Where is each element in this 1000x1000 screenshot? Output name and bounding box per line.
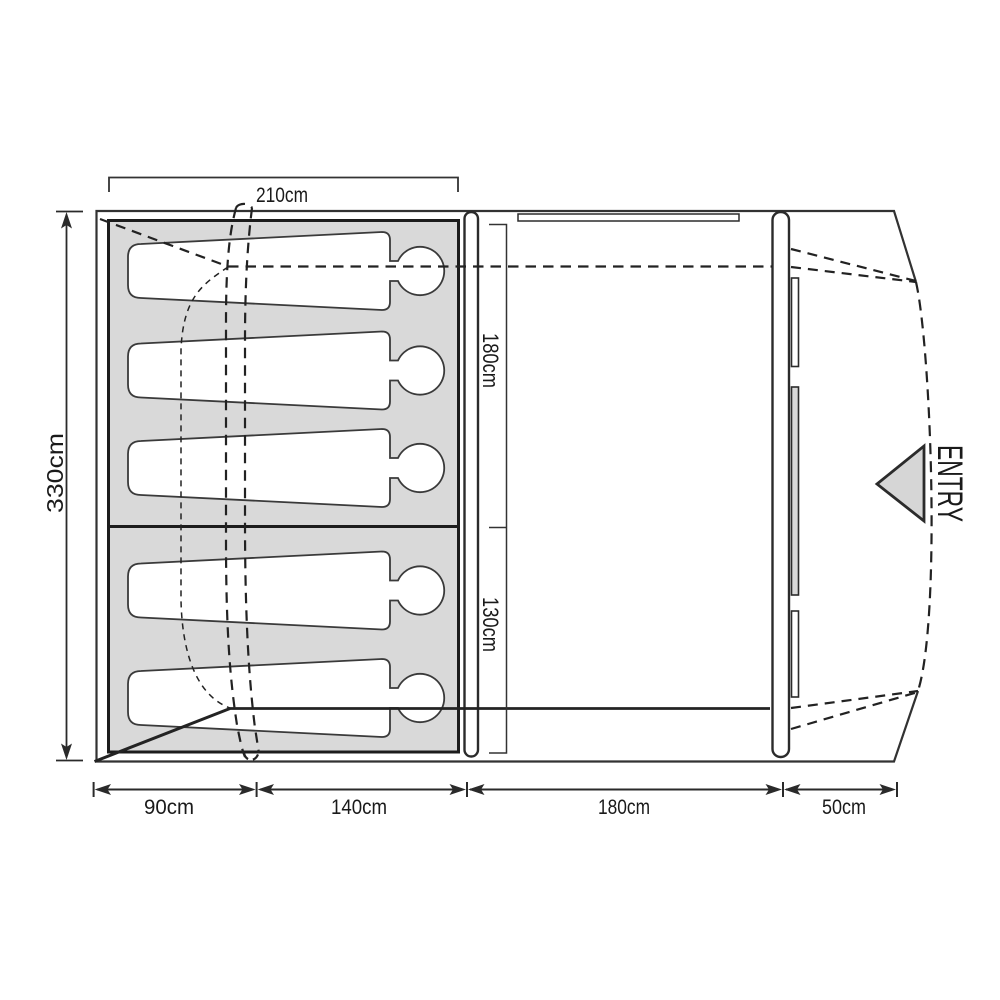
svg-text:180cm: 180cm bbox=[598, 796, 650, 819]
svg-text:ENTRY: ENTRY bbox=[930, 445, 969, 522]
svg-text:130cm: 130cm bbox=[478, 597, 503, 652]
svg-text:210cm: 210cm bbox=[256, 184, 308, 207]
svg-text:180cm: 180cm bbox=[478, 333, 503, 388]
svg-text:90cm: 90cm bbox=[144, 796, 194, 819]
svg-text:50cm: 50cm bbox=[822, 796, 866, 819]
svg-text:330cm: 330cm bbox=[42, 433, 68, 513]
svg-text:140cm: 140cm bbox=[331, 796, 387, 819]
